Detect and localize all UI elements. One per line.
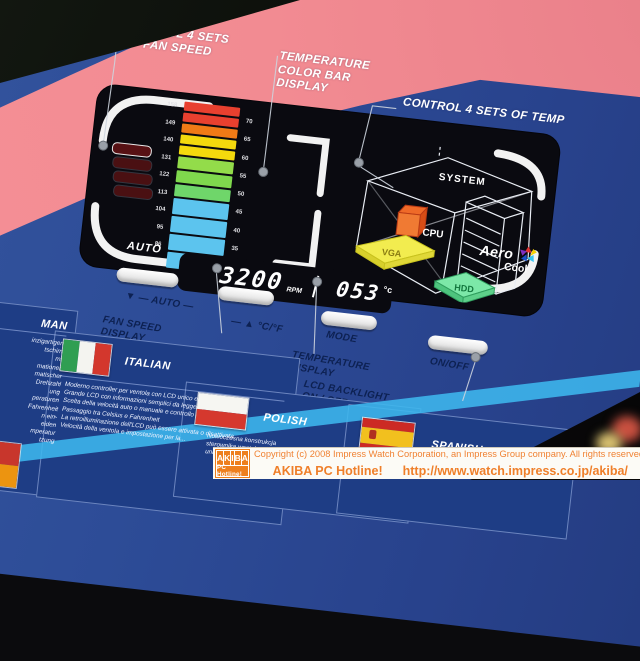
polish-flag xyxy=(194,392,249,431)
site-name: AKIBA PC Hotline! xyxy=(273,464,383,478)
footer-bar: A K I B A PC Hotline! Copyright (c) 2008… xyxy=(213,447,640,479)
italian-flag xyxy=(59,338,112,376)
akiba-logo: A K I B A PC Hotline! xyxy=(215,449,250,478)
copyright-text: Copyright (c) 2008 Impress Watch Corpora… xyxy=(254,449,640,459)
italian-panel-title: ITALIAN xyxy=(124,355,171,372)
site-url[interactable]: http://www.watch.impress.co.jp/akiba/ xyxy=(403,464,628,478)
polish-panel-title: POLISH xyxy=(263,412,308,429)
akiba-logo-subtitle: PC Hotline! xyxy=(217,466,248,476)
